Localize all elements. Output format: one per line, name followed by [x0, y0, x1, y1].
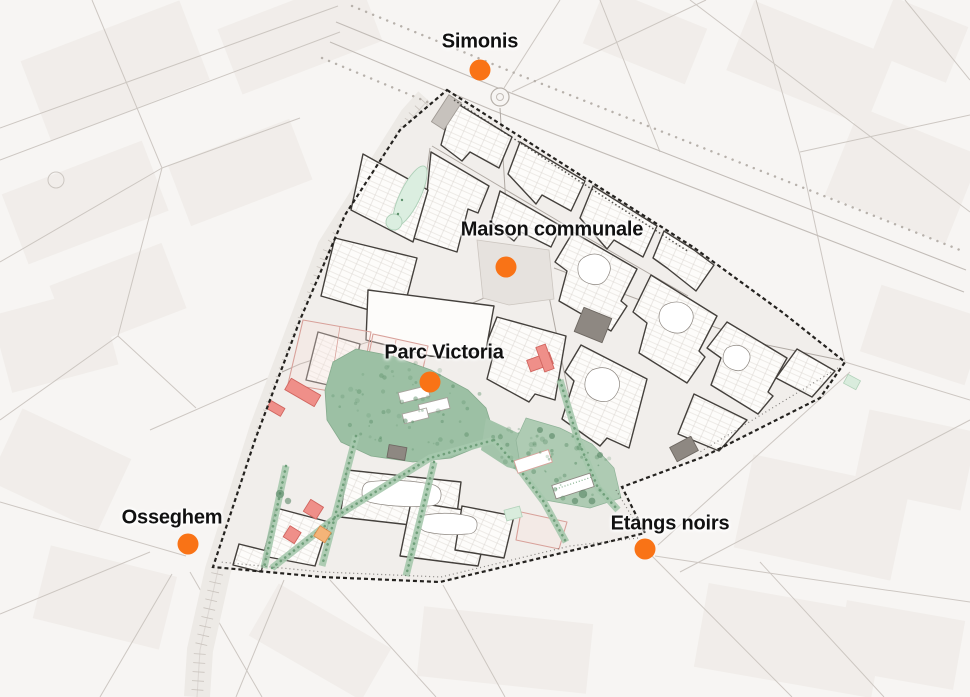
map-markers: SimonisMaison communaleParc VictoriaOsse… [0, 0, 970, 697]
marker-dot-osseghem [178, 534, 199, 555]
marker-dot-parc-victoria [420, 372, 441, 393]
marker-dot-etangs-noirs [635, 539, 656, 560]
marker-dot-simonis [470, 60, 491, 81]
marker-label-maison-communale: Maison communale [461, 219, 643, 242]
marker-label-etangs-noirs: Etangs noirs [611, 513, 730, 536]
marker-label-simonis: Simonis [442, 31, 518, 54]
marker-label-parc-victoria: Parc Victoria [384, 342, 503, 365]
marker-dot-maison-communale [496, 257, 517, 278]
marker-label-osseghem: Osseghem [122, 507, 223, 530]
district-map-figure: SimonisMaison communaleParc VictoriaOsse… [0, 0, 970, 697]
